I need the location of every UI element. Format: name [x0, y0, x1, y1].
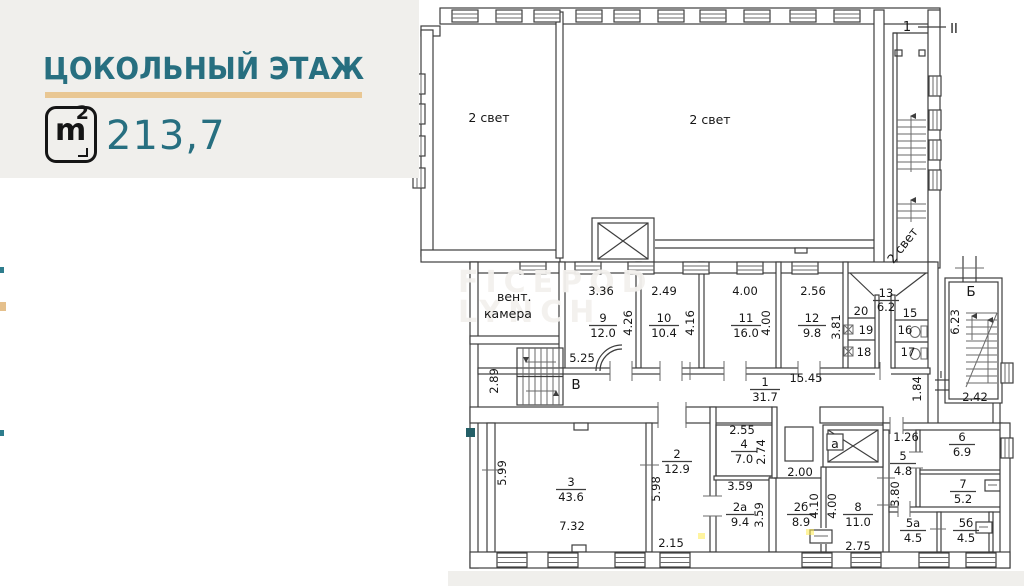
svg-text:5.2: 5.2	[954, 492, 972, 506]
svg-text:9: 9	[599, 311, 606, 325]
dim-label: 5.98	[649, 476, 663, 502]
edge-artifact	[466, 428, 475, 437]
bottom-margin	[448, 571, 1024, 586]
dim-label: 3.59	[727, 479, 753, 493]
svg-text:4: 4	[740, 437, 747, 451]
svg-text:5: 5	[899, 449, 906, 463]
svg-text:10: 10	[657, 311, 672, 325]
dim-label: 2.00	[787, 465, 813, 479]
total-area-value: 213,7	[106, 113, 226, 159]
svg-text:4.5: 4.5	[957, 531, 975, 545]
svg-text:2а: 2а	[733, 500, 747, 514]
highlight-mark	[806, 529, 814, 535]
dim-label: 5.25	[569, 351, 595, 365]
room-label-10: 10 10.4	[649, 311, 679, 340]
svg-text:11.0: 11.0	[845, 515, 871, 529]
room-label-3: 3 43.6	[556, 475, 586, 504]
svg-text:31.7: 31.7	[752, 390, 778, 404]
svg-text:12.0: 12.0	[590, 326, 616, 340]
icon-corner-mark	[78, 148, 88, 157]
dim-label: 2.15	[658, 536, 684, 550]
walls-top-block	[421, 8, 940, 268]
dim-label: 2.56	[800, 284, 826, 298]
svg-text:7: 7	[959, 477, 966, 491]
room-label-11: 11 16.0	[731, 311, 761, 340]
room-label-12: 12 9.8	[798, 311, 826, 340]
dim-label: 4.16	[683, 310, 697, 336]
svg-text:4.5: 4.5	[904, 531, 922, 545]
svg-text:6.2: 6.2	[877, 300, 895, 314]
dim-label: 6.23	[948, 309, 962, 335]
dim-label: 2.74	[754, 439, 768, 465]
room-label-2: 2 12.9	[662, 447, 692, 476]
dim-label: 4.26	[621, 310, 635, 336]
cell-label: 17	[901, 345, 916, 359]
svg-text:5б: 5б	[959, 516, 973, 530]
svg-text:9.4: 9.4	[731, 515, 749, 529]
stair-number: 1	[903, 20, 911, 35]
light-label: 2 свет	[468, 110, 509, 125]
dim-label: 1.84	[910, 376, 924, 402]
room-label-5a: 5а 4.5	[900, 516, 926, 545]
svg-text:12.9: 12.9	[664, 462, 690, 476]
svg-text:43.6: 43.6	[558, 490, 584, 504]
svg-text:8: 8	[854, 500, 861, 514]
cell-label: 20	[854, 304, 869, 318]
light-label: 2 свет	[884, 224, 921, 266]
room-label-5b: 5б 4.5	[953, 516, 979, 545]
room-label-6: 6 6.9	[949, 430, 975, 459]
svg-text:7.0: 7.0	[735, 452, 753, 466]
svg-text:4.8: 4.8	[894, 464, 912, 478]
vent-label: вент.	[497, 289, 532, 304]
dim-label: 2.55	[729, 423, 755, 437]
room-label-5: 5 4.8	[890, 449, 916, 478]
dim-label: 1.26	[893, 430, 919, 444]
page-title: ЦОКОЛЬНЫЙ ЭТАЖ	[43, 52, 364, 87]
dim-label: 3.59	[752, 502, 766, 528]
dim-label: 2.49	[651, 284, 677, 298]
dim-label: 15.45	[790, 371, 823, 385]
dim-label: 7.32	[559, 519, 585, 533]
elevator-letter: а	[831, 436, 839, 451]
dim-label: 2.75	[845, 539, 871, 553]
light-label: 2 свет	[689, 112, 730, 127]
svg-text:11: 11	[739, 311, 754, 325]
svg-text:13: 13	[879, 286, 894, 300]
dim-label: 4.00	[825, 493, 839, 519]
vent-label: камера	[484, 306, 532, 321]
dim-label: 2.42	[962, 390, 988, 404]
dim-label: 5.99	[495, 460, 509, 486]
dim-label: 3.81	[829, 314, 843, 340]
dim-label: 3.80	[888, 481, 902, 507]
cell-label: 18	[857, 345, 872, 359]
cell-label: 16	[898, 323, 913, 337]
svg-text:16.0: 16.0	[733, 326, 759, 340]
room-label-8: 8 11.0	[843, 500, 873, 529]
dim-label: 3.36	[588, 284, 614, 298]
svg-text:3: 3	[567, 475, 574, 489]
svg-text:9.8: 9.8	[803, 326, 821, 340]
room-label-1: 1 31.7	[750, 375, 780, 404]
square-meter-icon: m 2	[45, 106, 97, 163]
dim-label: 4.00	[732, 284, 758, 298]
staircase-icon-v	[517, 348, 563, 405]
page: { "header": { "title": "ЦОКОЛЬНЫЙ ЭТАЖ",…	[0, 0, 1024, 586]
stair-letter: В	[571, 377, 580, 393]
title-underline	[45, 92, 362, 98]
room-label-2a: 2а 9.4	[726, 500, 754, 529]
dim-label: 4.10	[807, 493, 821, 519]
svg-text:6: 6	[958, 430, 965, 444]
edge-artifact	[0, 267, 4, 273]
edge-artifact	[0, 302, 6, 311]
dim-label: 4.00	[759, 310, 773, 336]
svg-text:2: 2	[673, 447, 680, 461]
elevator-icon	[592, 218, 654, 264]
stair-letter: Б	[966, 284, 975, 300]
cell-label: 19	[859, 323, 874, 337]
highlight-mark	[698, 533, 705, 539]
staircase-icon-top	[897, 116, 926, 222]
svg-text:5а: 5а	[906, 516, 920, 530]
axis-mark: I	[940, 370, 943, 381]
room-label-7: 7 5.2	[950, 477, 976, 506]
svg-text:1: 1	[761, 375, 768, 389]
edge-artifact	[0, 430, 4, 436]
svg-text:12: 12	[805, 311, 820, 325]
dim-label: 2.89	[487, 368, 501, 394]
svg-text:10.4: 10.4	[651, 326, 677, 340]
cell-label: 15	[903, 306, 918, 320]
shaft	[785, 427, 813, 461]
svg-text:6.9: 6.9	[953, 445, 971, 459]
room-label-13: 13 6.2	[873, 286, 899, 314]
section-mark: II	[950, 22, 958, 37]
